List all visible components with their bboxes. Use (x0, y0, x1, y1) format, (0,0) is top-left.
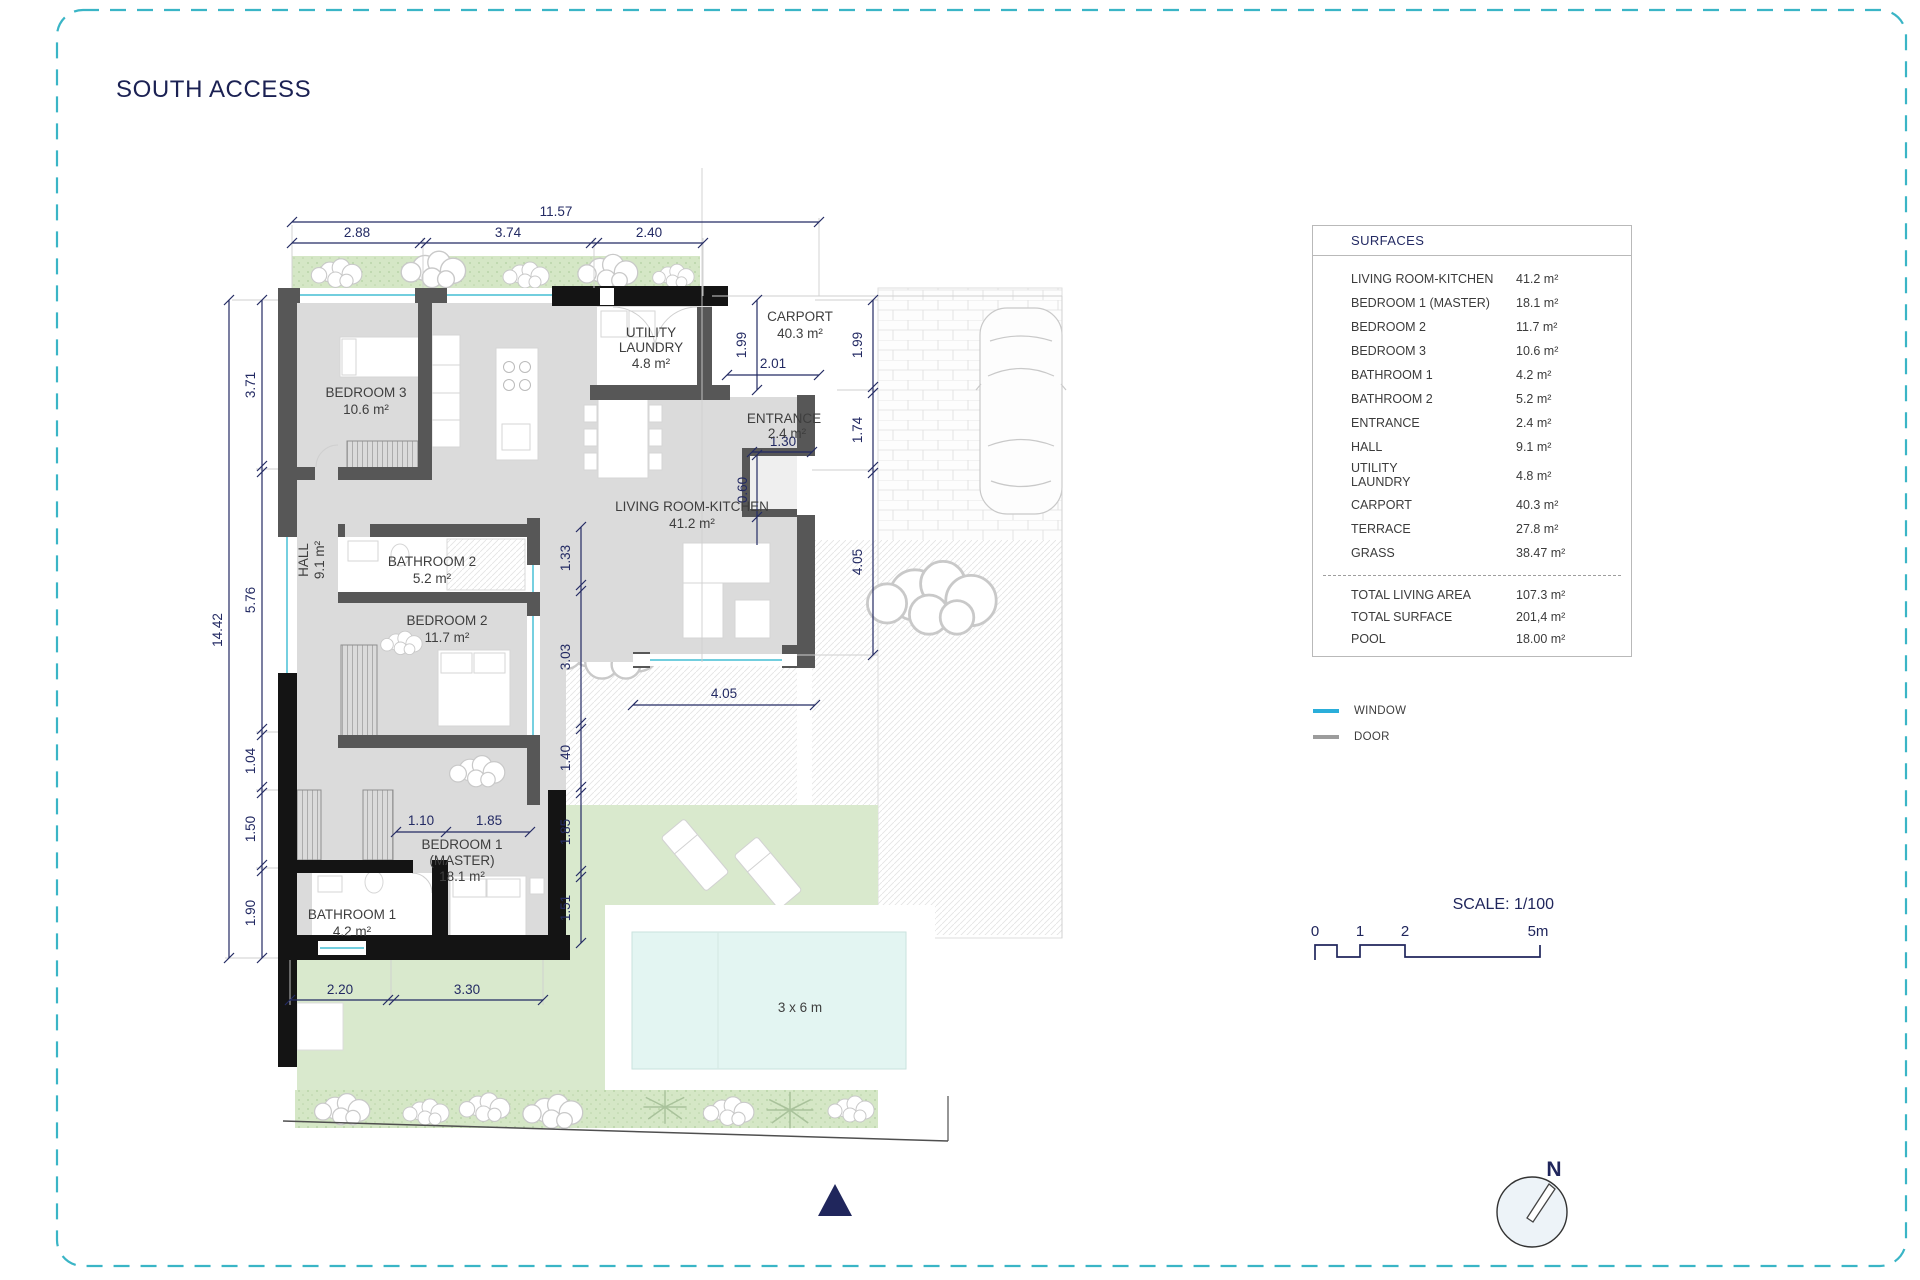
dim-left-3: 1.04 (243, 747, 258, 774)
surfaces-row: BEDROOM 211.7 m² (1313, 316, 1631, 340)
pool (605, 905, 935, 1095)
page: 11.57 2.88 3.74 2.40 14.42 3.71 5.76 1.0… (0, 0, 1920, 1280)
door-swatch-icon (1313, 735, 1339, 739)
row-label: TERRACE (1351, 522, 1411, 536)
surfaces-row: BEDROOM 310.6 m² (1313, 340, 1631, 364)
dim-mid-5: 1.51 (558, 895, 573, 921)
label-utility-2: LAUNDRY (619, 340, 683, 355)
label-utility-area: 4.8 m² (632, 356, 671, 371)
floor-plan: 11.57 2.88 3.74 2.40 14.42 3.71 5.76 1.0… (0, 0, 1920, 1280)
dim-right-1: 1.99 (850, 332, 865, 358)
surfaces-title: SURFACES (1351, 233, 1424, 248)
label-bedroom1-master: (MASTER) (429, 853, 494, 868)
surfaces-total-row: TOTAL LIVING AREA107.3 m² (1313, 585, 1631, 607)
surfaces-row: TERRACE27.8 m² (1313, 518, 1631, 542)
label-living: LIVING ROOM-KITCHEN (615, 499, 769, 514)
dim-left-5: 1.90 (243, 900, 258, 926)
row-value: 4.8 m² (1516, 469, 1551, 483)
legend-window-label: WINDOW (1354, 705, 1406, 717)
total-value: 201,4 m² (1516, 610, 1565, 624)
label-bedroom1: BEDROOM 1 (421, 837, 502, 852)
dim-left-total: 14.42 (210, 613, 225, 647)
surfaces-total-row: TOTAL SURFACE201,4 m² (1313, 607, 1631, 629)
dim-carport-w: 2.01 (760, 356, 786, 371)
label-living-area: 41.2 m² (669, 516, 715, 531)
compass: N (1497, 1158, 1567, 1247)
row-value: 18.1 m² (1516, 296, 1558, 310)
dim-top-3: 2.40 (636, 225, 662, 240)
row-value: 10.6 m² (1516, 344, 1558, 358)
dim-mid-4: 1.85 (558, 819, 573, 845)
surfaces-row: LIVING ROOM-KITCHEN41.2 m² (1313, 268, 1631, 292)
total-label: TOTAL LIVING AREA (1351, 588, 1471, 602)
total-value: 107.3 m² (1516, 588, 1565, 602)
row-value: 11.7 m² (1516, 320, 1557, 334)
scale-tick-2: 2 (1401, 923, 1409, 940)
surfaces-row: ENTRANCE2.4 m² (1313, 412, 1631, 436)
total-label: POOL (1351, 632, 1386, 646)
car-outline (976, 308, 1066, 514)
label-entrance: ENTRANCE (747, 411, 821, 426)
label-bathroom2-area: 5.2 m² (413, 571, 452, 586)
totals-separator (1323, 575, 1621, 576)
surfaces-row: BATHROOM 25.2 m² (1313, 388, 1631, 412)
label-carport-area: 40.3 m² (777, 326, 823, 341)
row-label: ENTRANCE (1351, 416, 1420, 430)
row-value: 27.8 m² (1516, 522, 1558, 536)
dim-top-2: 3.74 (495, 225, 522, 240)
dim-mid-1: 1.33 (558, 545, 573, 571)
window-swatch-icon (1313, 709, 1339, 713)
surfaces-panel: SURFACES LIVING ROOM-KITCHEN41.2 m² BEDR… (1312, 225, 1632, 657)
label-carport: CARPORT (767, 309, 833, 324)
row-label: BEDROOM 3 (1351, 344, 1426, 358)
dim-mid-3: 1.40 (558, 745, 573, 771)
compass-north-label: N (1546, 1158, 1561, 1181)
surfaces-row: UTILITY LAUNDRY4.8 m² (1313, 460, 1631, 494)
surfaces-row: HALL9.1 m² (1313, 436, 1631, 460)
legend: WINDOW DOOR (1313, 698, 1406, 750)
label-bedroom3: BEDROOM 3 (325, 385, 406, 400)
row-value: 5.2 m² (1516, 392, 1551, 406)
dim-master-1: 1.10 (408, 813, 434, 828)
label-entrance-area: 2.4 m² (768, 426, 807, 441)
legend-window-row: WINDOW (1313, 698, 1406, 724)
scale-bar-graphic: 0 1 2 5m (1300, 914, 1558, 972)
row-label: GRASS (1351, 546, 1395, 560)
surfaces-row: BATHROOM 14.2 m² (1313, 364, 1631, 388)
total-label: TOTAL SURFACE (1351, 610, 1452, 624)
row-value: 4.2 m² (1516, 368, 1551, 382)
legend-door-row: DOOR (1313, 724, 1406, 750)
dim-carport-h: 1.99 (734, 332, 749, 358)
scale-tick-1: 1 (1356, 923, 1364, 940)
dim-left-2: 5.76 (243, 587, 258, 613)
surfaces-header: SURFACES (1313, 226, 1631, 256)
surfaces-row: CARPORT40.3 m² (1313, 494, 1631, 518)
surfaces-row: BEDROOM 1 (MASTER)18.1 m² (1313, 292, 1631, 316)
dim-top-1: 2.88 (344, 225, 370, 240)
dim-top-total: 11.57 (540, 204, 573, 219)
scale-title: SCALE: 1/100 (1300, 896, 1558, 914)
label-bathroom1: BATHROOM 1 (308, 907, 396, 922)
row-value: 41.2 m² (1516, 272, 1558, 286)
label-hall-area: 9.1 m² (312, 540, 327, 579)
scale-tick-5m: 5m (1528, 923, 1549, 940)
dim-terrace: 4.05 (711, 686, 737, 701)
label-pool-size: 3 x 6 m (778, 1000, 822, 1015)
label-utility-1: UTILITY (626, 325, 676, 340)
legend-door-label: DOOR (1354, 731, 1390, 743)
row-label: BEDROOM 2 (1351, 320, 1426, 334)
dim-right-3: 4.05 (850, 549, 865, 575)
south-access-marker (818, 1184, 852, 1216)
row-label: LIVING ROOM-KITCHEN (1351, 272, 1493, 286)
label-bedroom2-area: 11.7 m² (425, 630, 470, 645)
row-label: CARPORT (1351, 498, 1412, 512)
label-bedroom1-area: 18.1 m² (439, 869, 485, 884)
dim-right-2: 1.74 (850, 416, 865, 443)
dim-bottom-2: 3.30 (454, 982, 480, 997)
label-bathroom2: BATHROOM 2 (388, 554, 476, 569)
label-bedroom3-area: 10.6 m² (343, 402, 389, 417)
dim-left-1: 3.71 (243, 372, 258, 398)
row-value: 9.1 m² (1516, 440, 1551, 454)
scale-tick-0: 0 (1311, 923, 1319, 940)
row-value: 2.4 m² (1516, 416, 1551, 430)
row-label: UTILITY LAUNDRY (1351, 461, 1421, 490)
dim-left-4: 1.50 (243, 816, 258, 842)
label-bedroom2: BEDROOM 2 (406, 613, 487, 628)
label-bathroom1-area: 4.2 m² (333, 924, 372, 939)
surfaces-row: GRASS38.47 m² (1313, 542, 1631, 566)
dim-bottom-1: 2.20 (327, 982, 353, 997)
dim-master-2: 1.85 (476, 813, 502, 828)
row-label: HALL (1351, 440, 1382, 454)
row-label: BEDROOM 1 (MASTER) (1351, 296, 1490, 310)
row-value: 38.47 m² (1516, 546, 1565, 560)
dim-mid-2: 3.03 (558, 644, 573, 670)
row-label: BATHROOM 2 (1351, 392, 1433, 406)
page-title: SOUTH ACCESS (116, 76, 311, 104)
row-value: 40.3 m² (1516, 498, 1558, 512)
total-value: 18.00 m² (1516, 632, 1565, 646)
surfaces-total-row: POOL18.00 m² (1313, 629, 1631, 651)
scale-bar: SCALE: 1/100 0 1 2 5m (1300, 896, 1558, 977)
label-hall: HALL (296, 543, 311, 577)
row-label: BATHROOM 1 (1351, 368, 1433, 382)
